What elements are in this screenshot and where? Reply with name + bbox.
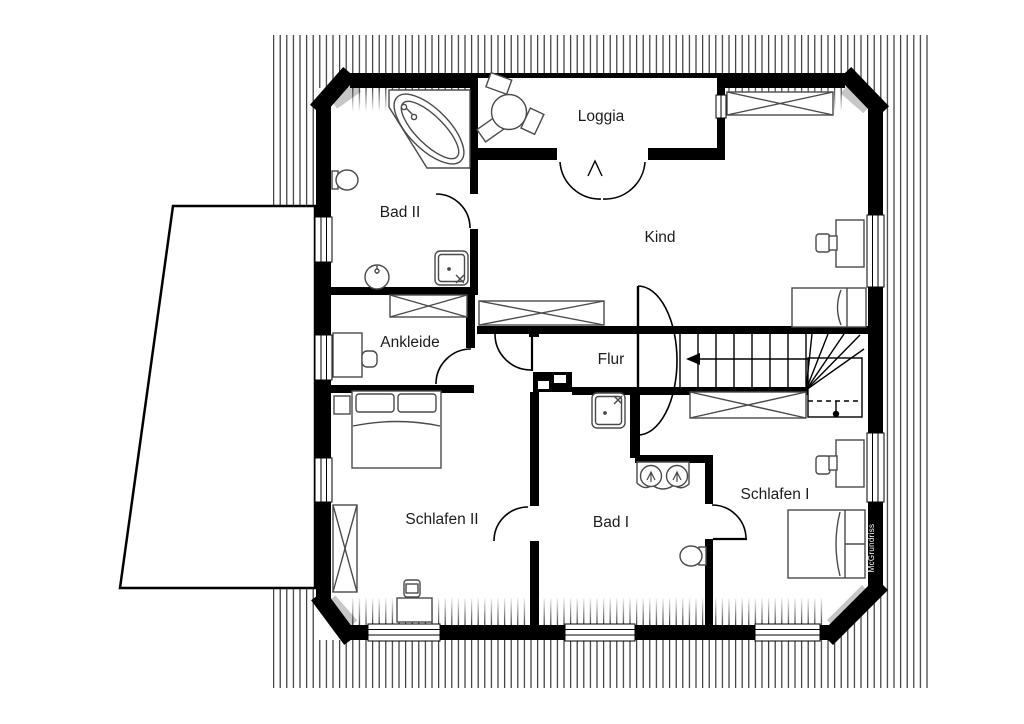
toilet-bad1-icon: [680, 546, 706, 566]
wardrobe-schlafen2-icon: [333, 505, 357, 592]
floor-plan-canvas: Bad II Loggia Kind Ankleide Flur Schlafe…: [0, 0, 1024, 724]
room-label-flur: Flur: [598, 351, 625, 368]
shower-tray-icon: [435, 251, 468, 285]
window-schlafen2: [315, 458, 332, 502]
washbasin-icon: [365, 265, 389, 289]
window-schlafen1: [867, 433, 884, 502]
window-bottom-schlafen1: [755, 624, 820, 641]
window-kind: [867, 215, 884, 287]
room-label-kind: Kind: [644, 229, 675, 246]
room-label-ankleide: Ankleide: [380, 334, 439, 351]
room-label-schlafen2: Schlafen II: [405, 511, 478, 528]
bed-kind-icon: [792, 288, 866, 327]
double-washbasin-icon: [637, 462, 689, 489]
window-bottom-bad1: [565, 624, 635, 641]
room-label-bad1: Bad I: [593, 514, 629, 531]
room-label-schlafen1: Schlafen I: [741, 486, 810, 503]
bed-schlafen1-icon: [788, 510, 865, 578]
room-label-loggia: Loggia: [578, 108, 625, 125]
wardrobe-kind-icon: [727, 92, 833, 115]
toilet-icon: [332, 170, 358, 190]
shower-tray-bad1-icon: [592, 393, 625, 428]
window-loggia-side: [716, 95, 726, 118]
floor-plan-page: Bad II Loggia Kind Ankleide Flur Schlafe…: [0, 0, 1024, 724]
wardrobe-ankleide-icon: [390, 295, 467, 317]
window-bottom-schlafen2: [368, 624, 440, 641]
window-bad2: [315, 217, 332, 262]
watermark-text: McGrundriss: [867, 524, 876, 573]
room-label-bad2: Bad II: [380, 204, 421, 221]
stair-start-dot: [833, 411, 839, 417]
annex-roof-outline: [120, 206, 315, 588]
sideboard-kind-icon: [479, 301, 604, 325]
wardrobe-understairs-icon: [690, 392, 806, 418]
window-ankleide: [315, 335, 332, 380]
